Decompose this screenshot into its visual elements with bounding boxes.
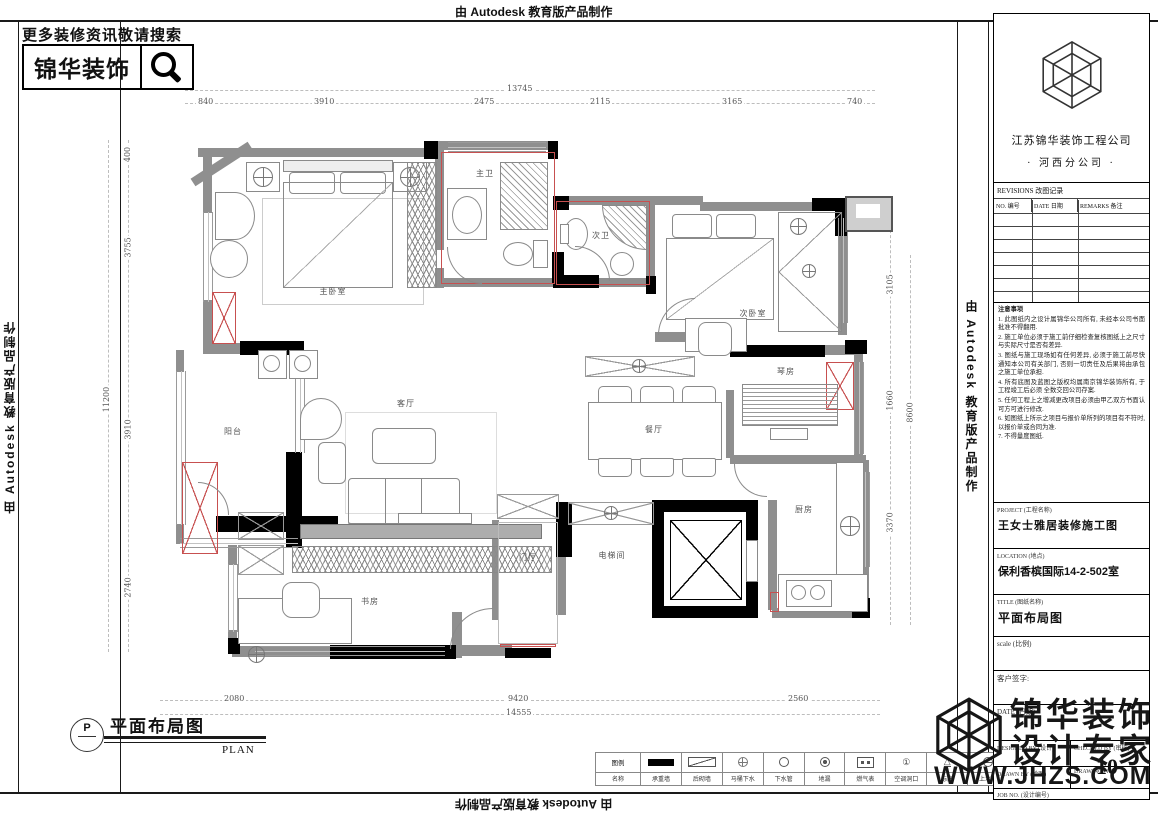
wardrobe-knob-icon [802,264,816,278]
dim-bottom-total: 14555 [504,708,533,717]
room-label: 阳台 [215,426,251,437]
legend-toilet-drain-icon [738,757,748,767]
tv [398,513,472,524]
washbasin [610,252,634,276]
plan-title-zh: 平面布局图 [110,712,205,737]
legend-header-bottom: 名称 [596,773,640,785]
dim-top-3: 2115 [588,97,612,106]
door-arc [734,464,767,497]
wall-segment [203,300,212,348]
plan-title-en: PLAN [222,744,255,756]
note-item: 7. 不得量度图纸. [998,433,1145,442]
company-cube-logo-icon [1036,36,1108,114]
door-arc [198,482,229,515]
door-arc [658,298,695,335]
room-label: 次卫 [586,230,616,241]
dim-top-4: 3165 [720,97,744,106]
room-label: 客厅 [388,398,424,409]
side-table [318,442,346,484]
threshold-red-line [500,644,556,647]
dim-bottom-2: 2560 [786,694,810,703]
project-value: 王女士雅居装修施工图 [994,514,1149,536]
revisions-section: REVISIONS 改图记录 NO. 编号 DATE 日期 REMARKS 备注 [994,182,1149,302]
nightstand-lamp-icon [253,167,273,187]
toilet [503,242,533,266]
legend-item-label: 地漏 [805,773,845,785]
revision-row [994,252,1149,265]
revisions-title: REVISIONS 改图记录 [994,183,1149,198]
desk-chair [282,582,320,618]
bed-headboard [283,160,393,172]
legend-item: 下水管 [763,753,804,785]
desk-chair [698,322,732,356]
room-label: 主卫 [470,168,500,179]
dim-right-2: 3370 [886,510,895,534]
note-item: 6. 如图纸上所示之项目与报价单所列的项目有不符时, 以报价单或合同为准. [998,415,1145,432]
room-label: 厨房 [786,504,822,515]
floor-drain-icon [604,506,618,520]
company-branch: · 河西分公司 · [994,154,1149,169]
dining-chair [640,458,674,477]
autodesk-banner-right: 由 Autodesk 教育版产品制作 [963,300,980,493]
scale-label: scale (比例) [994,637,1149,649]
magnifier-handle-icon [168,70,181,83]
dim-left-1: 3755 [124,235,133,259]
dim-top-total: 13745 [505,84,534,93]
window [255,646,445,656]
dim-right-0: 3105 [886,272,895,296]
revisions-col-line [1032,200,1033,303]
burner-icon [810,585,825,600]
toilet-tank [560,224,569,244]
revision-row [994,278,1149,291]
armchair [300,398,342,440]
legend-item: 承重墙 [640,753,681,785]
shower [500,162,548,230]
legend-item-label: 后砌墙 [682,773,722,785]
room-label: 主卧室 [308,286,358,297]
scale-section: scale (比例) [994,636,1149,670]
dim-left-0: 400 [123,145,132,164]
wall-segment [228,545,237,565]
wall-black-segment [845,340,867,354]
notes-section: 注意事项 1. 此图纸内之设计属锦华公司所有, 未经本公司书面批准不得翻用. 2… [994,302,1149,502]
wall-segment [203,157,212,213]
room-label: 次卧室 [728,308,778,319]
washing-machine-drum-icon [263,355,280,372]
washbasin [452,196,482,234]
revision-row [994,239,1149,252]
legend-item-label: 空调洞口 [886,773,926,785]
room-label: 电梯间 [588,550,636,561]
revisions-col-line [1078,200,1079,303]
legend-solid-wall-icon [648,759,674,766]
brand-name: 锦华装饰 [24,46,140,88]
brand-search-box: 锦华装饰 [22,44,194,90]
notes-title: 注意事项 [998,306,1145,315]
legend-item-label: 下水管 [764,773,804,785]
bed [283,182,393,288]
legend-header: 图例 名称 [596,753,640,785]
wall-segment [726,390,734,458]
sheet-title-section: TITLE (图纸名称) 平面布局图 [994,594,1149,636]
legend-new-wall-icon [688,757,716,767]
hall-floor [498,522,558,644]
note-item: 5. 任何工程上之增减更改项目必须由甲乙双方书面认可方可进行修改. [998,397,1145,414]
wardrobe [407,162,437,288]
window [228,564,238,632]
revision-row [994,226,1149,239]
legend-header-top: 图例 [596,753,640,773]
plan-title-rule-thin [104,742,266,743]
autodesk-banner-top: 由 Autodesk 教育版产品制作 [455,3,612,20]
frame-left-inner-line [120,20,121,792]
legend-item-label: 马桶下水 [723,773,763,785]
company-name: 江苏锦华装饰工程公司 [994,132,1149,148]
legend-item: 地漏 [804,753,845,785]
note-item: 2. 施工单位必须于施工前仔细检查复核图纸上之尺寸与实际尺寸是否有差异. [998,334,1145,351]
elevator-car [670,520,742,600]
coffee-table [372,428,436,464]
dim-top-0: 840 [196,97,215,106]
revisions-col-remarks: REMARKS 备注 [1078,199,1149,212]
dim-line-top [185,103,875,104]
radiator-red-box [212,292,236,344]
gas-riser-red-mark [770,592,779,612]
dining-chair [598,458,632,477]
dim-left-3: 2740 [124,575,133,599]
side-table [210,240,248,278]
dim-left-total: 11200 [102,385,111,414]
plan-symbol-circle: P [70,718,104,752]
legend-ac-hole-icon: ① [902,757,910,768]
revision-row [994,213,1149,226]
room-label: 书房 [352,596,388,607]
elevator-wall [652,500,758,512]
revision-row [994,265,1149,278]
dim-right-1: 1660 [886,388,895,412]
revisions-col-date: DATE 日期 [1032,199,1078,212]
elevator-door [746,540,758,582]
legend-item-label: 承重墙 [641,773,681,785]
piano-bench [770,428,808,440]
elevator-wall [652,606,758,618]
laundry-sink-basin-icon [294,355,311,372]
dim-left-2: 3910 [124,417,133,441]
pillow [716,214,756,238]
project-label: PROJECT (工程名称) [994,503,1149,514]
toilet-tank [533,240,548,268]
location-section: LOCATION (地点) 保利香槟国际14-2-502室 [994,548,1149,594]
wall-segment [203,343,245,354]
dim-bottom-1: 9420 [506,694,530,703]
legend-item: 燃气表 [844,753,885,785]
legend-drain-pipe-icon [779,757,789,767]
note-item: 3. 图纸与施工现场如有任何差异, 必须于施工前尽快通知本公司有关部门, 否则一… [998,352,1145,378]
autodesk-banner-left: 由 Autodesk 教育版产品制作 [1,320,18,513]
legend-item-label: 燃气表 [845,773,885,785]
plan-title-rule-thick [104,736,266,739]
dim-right-total: 8600 [906,400,915,424]
kitchen-sink-icon [840,516,860,536]
project-section: PROJECT (工程名称) 王女士雅居装修施工图 [994,502,1149,548]
sheet-title-label: TITLE (图纸名称) [994,595,1149,606]
frame-right-inner-line [957,20,958,792]
room-label: 餐厅 [636,424,672,435]
wall-black-segment [424,141,438,159]
note-item: 1. 此图纸内之设计属锦华公司所有, 未经本公司书面批准不得翻用. [998,316,1145,333]
wall-black-segment [505,648,551,658]
note-item: 4. 所有底图及蓝图之版权均属南京锦华装饰所有, 于工程竣工后必须 全数交回公司… [998,379,1145,396]
dim-bottom-0: 2080 [222,694,246,703]
title-block: 江苏锦华装饰工程公司 · 河西分公司 · REVISIONS 改图记录 NO. … [993,13,1150,800]
legend-gas-meter-icon [857,757,874,768]
legend-item: ① 空调洞口 [885,753,926,785]
storage-cabinet [238,512,284,540]
plan-symbol-letter: P [78,721,96,737]
floor-drain-icon [632,359,646,373]
client-sign-label: 客户签字: [994,671,1149,684]
legend-item: 马桶下水 [722,753,763,785]
frame-right-banner-line [988,20,989,792]
sheet-title-value: 平面布局图 [994,606,1149,629]
shoe-cabinet [497,494,559,519]
ac-ledge-inner [856,204,880,218]
storage-cabinet [238,545,284,575]
revisions-col-no: NO. 编号 [994,199,1032,212]
pillow [672,214,712,238]
autodesk-banner-bottom: 由 Autodesk 教育版产品制作 [455,796,612,813]
frame-left-outer-line [18,20,19,792]
window [854,362,864,454]
magnifier-cell [140,46,192,88]
wall-segment [176,350,184,372]
piano [742,384,838,426]
legend-item: 后砌墙 [681,753,722,785]
watermark-url: WWW.JHZS.COM [934,762,1152,791]
dining-chair [682,458,716,477]
burner-icon [791,585,806,600]
frame-top-line [0,20,1158,22]
room-label: 门厅 [510,552,546,563]
dim-top-2: 2475 [472,97,496,106]
window [448,142,546,152]
floor-drain-icon [248,646,265,663]
promo-search-hint: 更多装修资讯敬请搜索 [22,24,182,45]
armchair [215,192,255,240]
dim-top-1: 3910 [312,97,336,106]
dim-line-right [890,205,891,625]
watermark: 锦华装饰 设计专家 WWW.JHZS.COM [928,686,1158,796]
dim-line-right-total [910,255,911,625]
room-label: 琴房 [768,366,804,377]
legend-floor-drain-icon [820,757,830,767]
location-label: LOCATION (地点) [994,549,1149,560]
location-value: 保利香槟国际14-2-502室 [994,560,1149,582]
dim-top-5: 740 [845,97,864,106]
